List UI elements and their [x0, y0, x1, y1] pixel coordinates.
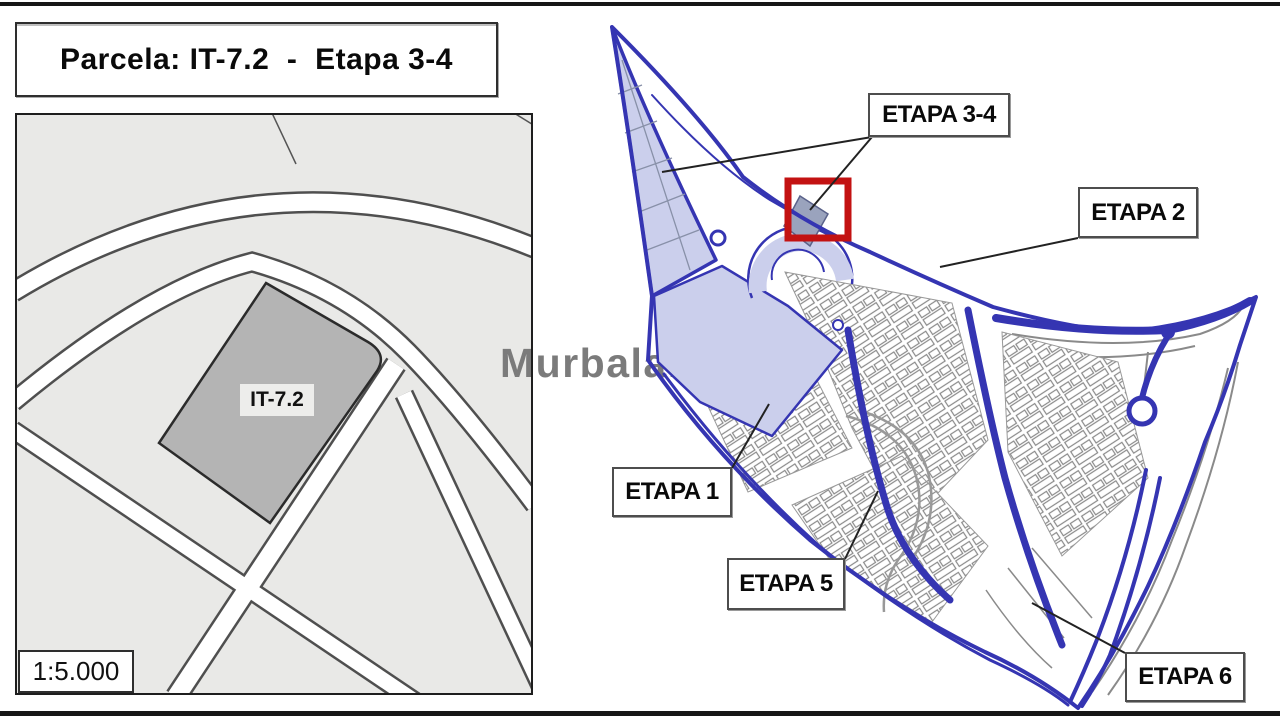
stage-label-text: ETAPA 5	[739, 570, 832, 598]
parcel-label: IT-7.2	[250, 388, 304, 412]
scale-box: 1:5.000	[18, 650, 134, 693]
plan-sheet: Murbalands ®	[0, 0, 1280, 720]
junction-icon	[1161, 325, 1175, 339]
stage-label-etapa-3-4: ETAPA 3-4	[868, 93, 1010, 137]
stage-label-text: ETAPA 2	[1091, 199, 1184, 227]
leader-line	[940, 238, 1078, 267]
roundabout-icon	[1129, 398, 1155, 424]
stage-label-etapa-5: ETAPA 5	[727, 558, 845, 610]
roundabout-icon	[833, 320, 843, 330]
roundabout-icon	[711, 231, 725, 245]
scale-label: 1:5.000	[33, 656, 120, 687]
leader-line	[810, 137, 872, 210]
page-title: Parcela: IT-7.2 - Etapa 3-4	[60, 43, 453, 77]
stage-label-etapa-6: ETAPA 6	[1125, 652, 1245, 702]
stage-label-etapa-1: ETAPA 1	[612, 467, 732, 517]
stage-label-text: ETAPA 3-4	[882, 101, 996, 129]
stage-label-text: ETAPA 1	[625, 478, 718, 506]
parcel-label-chip: IT-7.2	[240, 384, 314, 416]
title-box: Parcela: IT-7.2 - Etapa 3-4	[15, 22, 498, 97]
stage-label-etapa-2: ETAPA 2	[1078, 187, 1198, 238]
plan-graphics: Murbalands ®	[0, 0, 1280, 720]
stage-label-text: ETAPA 6	[1138, 663, 1231, 691]
